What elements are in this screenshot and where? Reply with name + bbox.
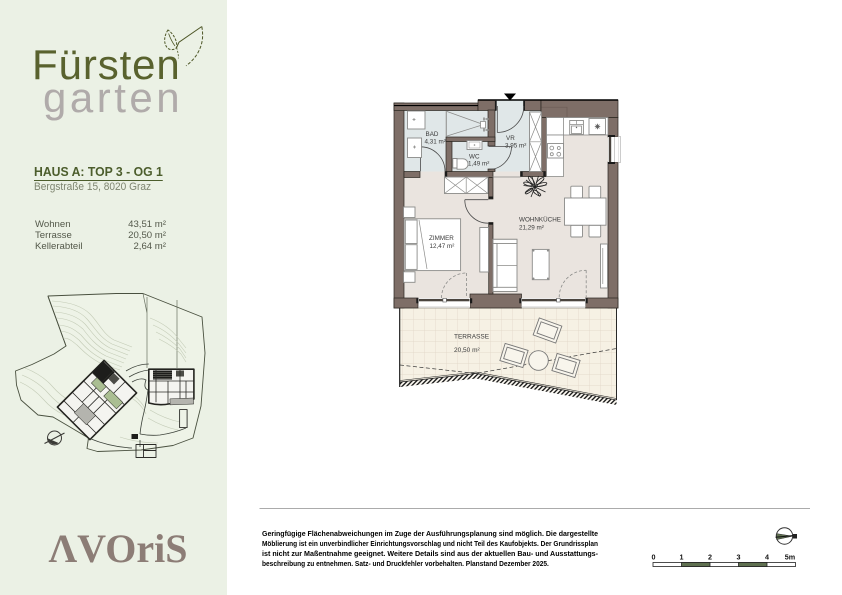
svg-text:TERRASSE: TERRASSE: [454, 334, 490, 341]
svg-text:ZIMMER: ZIMMER: [429, 235, 454, 242]
svg-text:WOHNKÜCHE: WOHNKÜCHE: [519, 216, 561, 224]
svg-text:1,49 m²: 1,49 m²: [468, 161, 489, 168]
svg-text:12,47 m²: 12,47 m²: [430, 243, 455, 250]
svg-text:4: 4: [765, 553, 769, 562]
svg-text:2: 2: [708, 553, 712, 562]
svg-text:WC: WC: [469, 154, 480, 161]
svg-text:3: 3: [737, 553, 741, 562]
svg-text:20,50 m²: 20,50 m²: [454, 347, 480, 354]
svg-text:3,95 m²: 3,95 m²: [505, 143, 526, 150]
svg-text:BAD: BAD: [426, 131, 439, 138]
svg-text:1: 1: [680, 553, 684, 562]
svg-text:5m: 5m: [785, 553, 795, 562]
svg-text:ΛVOriS: ΛVOriS: [49, 526, 188, 571]
svg-text:4,31 m²: 4,31 m²: [425, 139, 446, 146]
svg-text:VR: VR: [506, 135, 515, 142]
svg-text:0: 0: [652, 553, 656, 562]
svg-text:21,29 m²: 21,29 m²: [519, 225, 544, 232]
